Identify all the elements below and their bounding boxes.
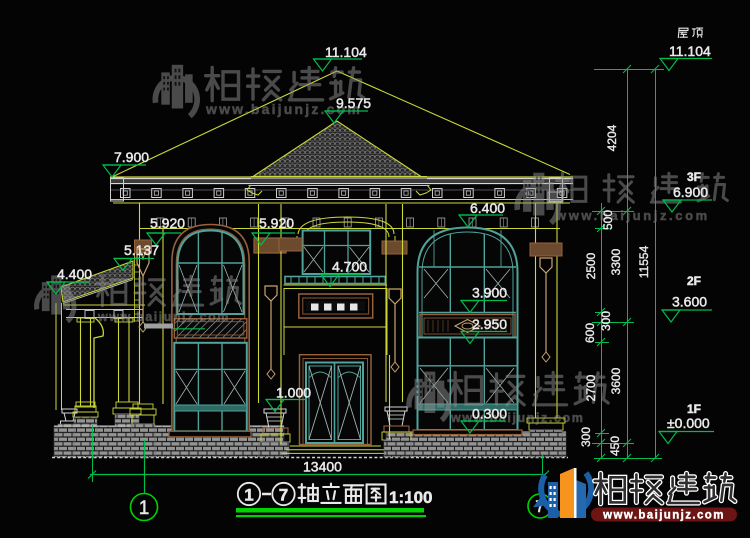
svg-text:2.950: 2.950 [472,316,507,332]
svg-text:0.300: 0.300 [472,406,507,422]
svg-text:±0.000: ±0.000 [667,415,710,431]
svg-text:5.920: 5.920 [150,215,185,231]
svg-text:4.700: 4.700 [332,259,367,275]
svg-text:11554: 11554 [637,245,651,278]
svg-text:3600: 3600 [609,367,623,394]
svg-text:5.137: 5.137 [124,242,159,258]
svg-text:www.baijunjz.com: www.baijunjz.com [555,208,710,223]
svg-text:www.baijunjz.com: www.baijunjz.com [602,510,725,522]
svg-text:11.104: 11.104 [669,43,711,59]
svg-text:1.000: 1.000 [276,385,311,401]
svg-text:600: 600 [583,323,597,343]
svg-text:3.900: 3.900 [472,285,507,301]
svg-text:7: 7 [279,486,288,505]
svg-text:3300: 3300 [609,248,623,275]
svg-text:2700: 2700 [584,374,598,401]
svg-text:1: 1 [244,486,253,505]
svg-text:300: 300 [579,427,593,447]
svg-text:5.920: 5.920 [259,215,294,231]
svg-text:3.600: 3.600 [672,294,707,310]
svg-text:7.900: 7.900 [114,149,149,165]
svg-text:6.900: 6.900 [673,184,708,200]
svg-text:www.baijunjz.com: www.baijunjz.com [97,310,230,324]
svg-text:1F: 1F [687,402,701,416]
svg-text:11.104: 11.104 [325,44,367,60]
svg-text:2F: 2F [687,274,701,288]
svg-text:2500: 2500 [584,252,598,279]
svg-text:450: 450 [608,436,622,456]
svg-text:300: 300 [599,311,613,331]
svg-text:1: 1 [139,498,150,519]
svg-text:500: 500 [601,210,615,230]
svg-text:1:100: 1:100 [389,488,432,507]
svg-text:4204: 4204 [605,124,619,151]
svg-text:13400: 13400 [303,459,342,475]
svg-text:4.400: 4.400 [57,266,92,282]
svg-text:6.400: 6.400 [470,200,505,216]
svg-text:3F: 3F [687,170,701,184]
svg-text:9.575: 9.575 [336,95,371,111]
svg-text:www.baijunjz.com: www.baijunjz.com [450,411,584,425]
